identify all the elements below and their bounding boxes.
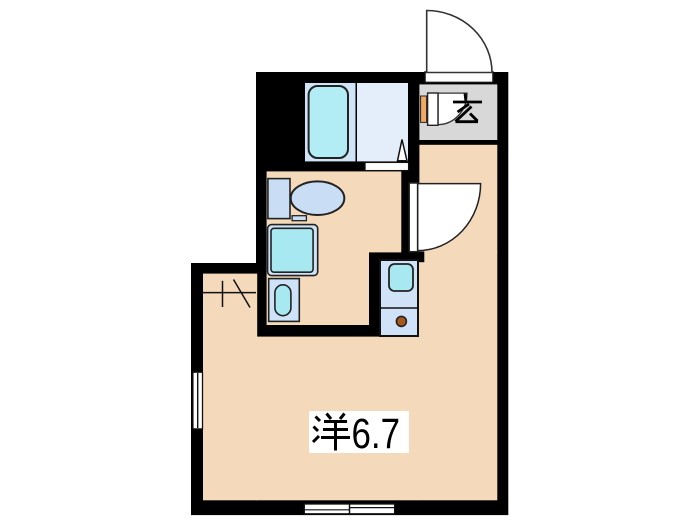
svg-text:6.7: 6.7 <box>352 410 401 458</box>
